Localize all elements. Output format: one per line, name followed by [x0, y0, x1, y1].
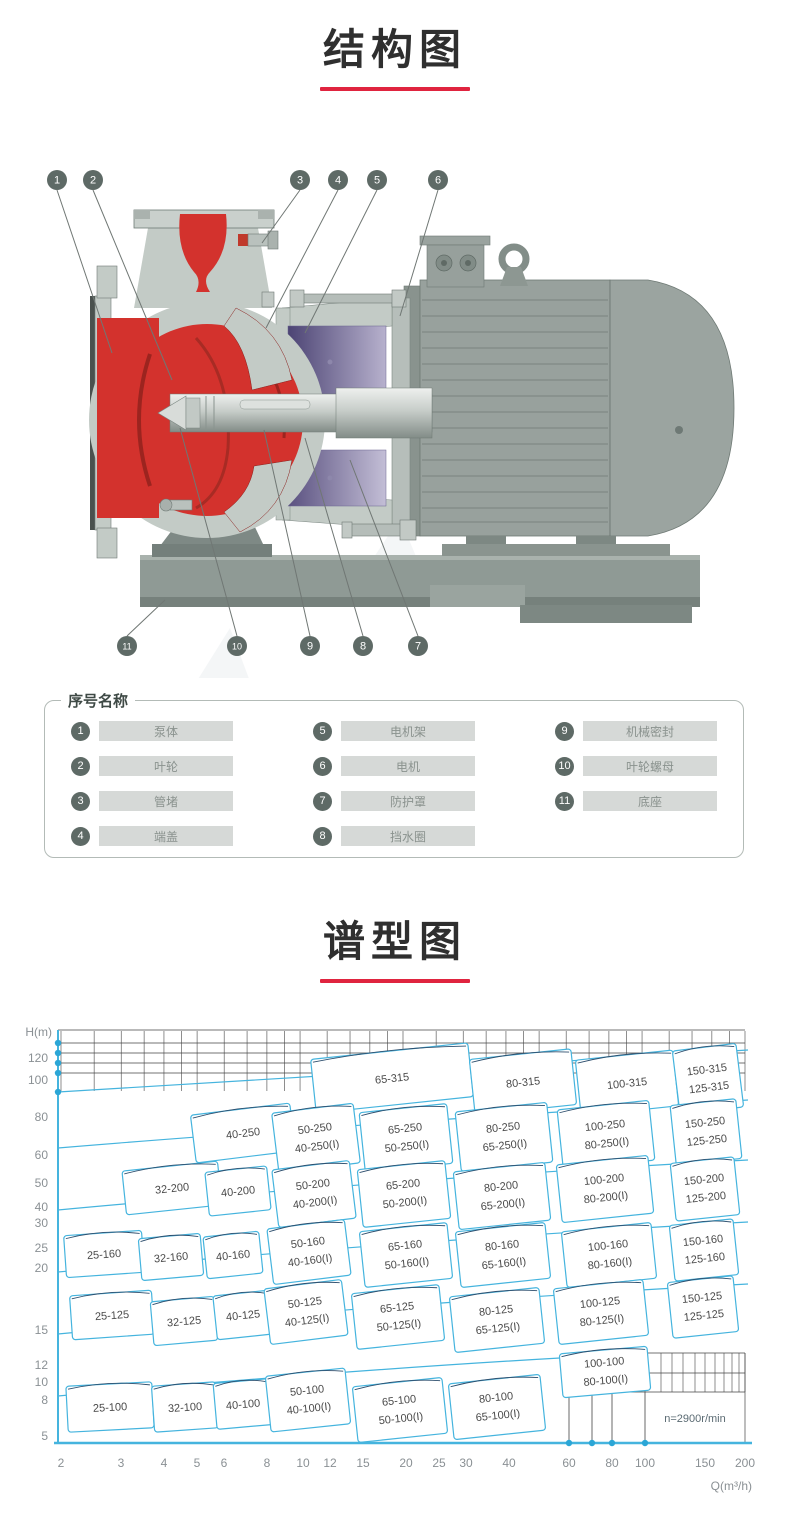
model-region-80-100: 80-10065-100(I) [448, 1374, 545, 1440]
legend-item: 10叶轮螺母 [555, 756, 717, 776]
model-region-40-125: 40-125 [213, 1290, 273, 1340]
legend-item-number: 2 [71, 757, 90, 776]
parts-legend-columns: 1泵体2叶轮3管堵4端盖5电机架6电机7防护罩8挡水圈9机械密封10叶轮螺母11… [45, 701, 743, 861]
x-tick-10: 10 [296, 1456, 310, 1470]
legend-item: 3管堵 [71, 791, 233, 811]
legend-item: 9机械密封 [555, 721, 717, 741]
model-region-25-125: 25-125 [70, 1290, 155, 1340]
parts-legend: 序号名称 1泵体2叶轮3管堵4端盖5电机架6电机7防护罩8挡水圈9机械密封10叶… [44, 700, 744, 858]
svg-text:3: 3 [297, 175, 303, 187]
legend-item-label: 电机架 [341, 721, 475, 741]
drain-plug [160, 499, 192, 511]
callout-9: 9 [300, 636, 320, 656]
y-tick-100: 100 [28, 1073, 48, 1087]
svg-text:10: 10 [232, 642, 242, 652]
y-tick-50: 50 [35, 1176, 49, 1190]
motor-end-screw [675, 426, 683, 434]
legend-item-label: 防护罩 [341, 791, 475, 811]
x-tick-8: 8 [264, 1456, 271, 1470]
model-region-25-160: 25-160 [64, 1230, 145, 1278]
pump-structure-diagram: 1234561110987 [0, 148, 790, 678]
model-region-65-125: 65-12550-125(I) [351, 1284, 444, 1349]
callout-10: 10 [227, 636, 247, 656]
legend-item-label: 泵体 [99, 721, 233, 741]
callout-2: 2 [83, 170, 103, 190]
structure-title-text: 结构图 [0, 16, 790, 77]
model-region-65-200: 65-20050-200(I) [357, 1160, 451, 1227]
x-tick-25: 25 [432, 1456, 446, 1470]
model-region-100-100: 100-10080-100(I) [559, 1346, 651, 1398]
x-tick-6: 6 [221, 1456, 228, 1470]
legend-item: 1泵体 [71, 721, 233, 741]
svg-text:2: 2 [90, 175, 96, 187]
model-region-100-200: 100-20080-200(I) [556, 1155, 654, 1223]
model-region-150-160: 150-160125-160 [669, 1218, 739, 1281]
y-tick-10: 10 [35, 1375, 49, 1389]
callout-1: 1 [47, 170, 67, 190]
legend-item-number: 11 [555, 792, 574, 811]
x-tick-200: 200 [735, 1456, 755, 1470]
pump-shaft [158, 388, 432, 438]
x-tick-15: 15 [356, 1456, 370, 1470]
y-tick-60: 60 [35, 1148, 49, 1162]
legend-item: 2叶轮 [71, 756, 233, 776]
model-region-65-160: 65-16050-160(I) [359, 1222, 452, 1287]
svg-text:9: 9 [307, 641, 313, 653]
model-region-100-125: 100-12580-125(I) [553, 1279, 648, 1345]
callout-7: 7 [408, 636, 428, 656]
model-region-80-160: 80-16065-160(I) [455, 1222, 550, 1288]
model-region-32-100: 32-100 [151, 1381, 218, 1432]
model-region-50-200: 50-20040-200(I) [272, 1160, 357, 1228]
parts-legend-title: 序号名称 [61, 690, 135, 711]
motor-lifting-eye [500, 247, 528, 286]
legend-item-label: 管堵 [99, 791, 233, 811]
legend-item-number: 1 [71, 722, 90, 741]
callout-5: 5 [367, 170, 387, 190]
motor [404, 236, 734, 556]
legend-item-label: 端盖 [99, 826, 233, 846]
callout-3: 3 [290, 170, 310, 190]
y-tick-30: 30 [35, 1216, 49, 1230]
model-region-80-125: 80-12565-125(I) [449, 1287, 544, 1353]
y-tick-40: 40 [35, 1200, 49, 1214]
x-axis-label: Q(m³/h) [711, 1479, 752, 1493]
title-underline [320, 87, 470, 91]
x-tick-30: 30 [459, 1456, 473, 1470]
pump-selection-chart: 65-31580-315100-315150-315125-31540-2505… [0, 1020, 790, 1520]
y-tick-12: 12 [35, 1358, 49, 1372]
callout-8: 8 [353, 636, 373, 656]
model-region-150-250: 150-250125-250 [670, 1098, 742, 1165]
svg-text:25-100: 25-100 [93, 1401, 128, 1415]
y-tick-120: 120 [28, 1051, 48, 1065]
svg-text:1: 1 [54, 175, 60, 187]
model-region-50-100: 50-10040-100(I) [265, 1367, 350, 1432]
legend-column: 9机械密封10叶轮螺母11底座 [555, 721, 717, 861]
speed-annotation: n=2900r/min [664, 1413, 725, 1425]
legend-item: 7防护罩 [313, 791, 475, 811]
legend-column: 1泵体2叶轮3管堵4端盖 [71, 721, 233, 861]
svg-text:25-125: 25-125 [95, 1309, 130, 1323]
model-region-150-200: 150-200125-200 [670, 1156, 740, 1221]
svg-text:4: 4 [335, 175, 341, 187]
shaft-keyway [240, 400, 310, 409]
spectrum-title-text: 谱型图 [0, 908, 790, 969]
legend-item-number: 3 [71, 792, 90, 811]
y-tick-8: 8 [41, 1393, 48, 1407]
model-region-50-160: 50-16040-160(I) [267, 1219, 351, 1285]
x-tick-5: 5 [194, 1456, 201, 1470]
svg-text:7: 7 [415, 641, 421, 653]
model-region-40-200: 40-200 [205, 1165, 271, 1216]
legend-item: 6电机 [313, 756, 475, 776]
legend-item-label: 挡水圈 [341, 826, 475, 846]
legend-item-number: 5 [313, 722, 332, 741]
model-region-80-200: 80-20065-200(I) [453, 1162, 551, 1230]
legend-item-number: 4 [71, 827, 90, 846]
y-tick-15: 15 [35, 1323, 49, 1337]
callout-4: 4 [328, 170, 348, 190]
model-region-80-250: 80-25065-250(I) [455, 1102, 553, 1172]
callout-6: 6 [428, 170, 448, 190]
model-region-32-125: 32-125 [150, 1296, 218, 1346]
x-tick-4: 4 [161, 1456, 168, 1470]
y-tick-80: 80 [35, 1110, 49, 1124]
legend-item-number: 8 [313, 827, 332, 846]
x-tick-60: 60 [562, 1456, 576, 1470]
x-tick-150: 150 [695, 1456, 715, 1470]
legend-item-label: 机械密封 [583, 721, 717, 741]
x-tick-2: 2 [58, 1456, 65, 1470]
model-region-150-125: 150-125125-125 [667, 1275, 739, 1338]
svg-text:11: 11 [122, 642, 131, 652]
chart-model-regions: 65-31580-315100-315150-315125-31540-2505… [64, 1042, 744, 1442]
motor-junction-box [420, 236, 490, 287]
legend-item-number: 9 [555, 722, 574, 741]
motor-seat [442, 544, 670, 556]
x-tick-20: 20 [399, 1456, 413, 1470]
legend-item-label: 叶轮螺母 [583, 756, 717, 776]
legend-item-label: 电机 [341, 756, 475, 776]
svg-text:5: 5 [374, 175, 380, 187]
model-region-40-100: 40-100 [213, 1378, 273, 1429]
legend-column: 5电机架6电机7防护罩8挡水圈 [313, 721, 475, 861]
x-tick-80: 80 [605, 1456, 619, 1470]
y-axis-label: H(m) [25, 1025, 52, 1039]
legend-item-label: 底座 [583, 791, 717, 811]
model-region-32-160: 32-160 [138, 1233, 203, 1281]
x-tick-12: 12 [323, 1456, 337, 1470]
y-tick-25: 25 [35, 1241, 49, 1255]
legend-item: 4端盖 [71, 826, 233, 846]
model-region-65-100: 65-10050-100(I) [352, 1377, 447, 1443]
svg-text:25-160: 25-160 [87, 1248, 122, 1262]
x-tick-100: 100 [635, 1456, 655, 1470]
structure-section-title: 结构图 [0, 16, 790, 91]
legend-item: 11底座 [555, 791, 717, 811]
spectrum-section-title: 谱型图 [0, 908, 790, 983]
y-tick-20: 20 [35, 1261, 49, 1275]
x-tick-3: 3 [118, 1456, 125, 1470]
legend-item: 8挡水圈 [313, 826, 475, 846]
model-region-100-160: 100-16080-160(I) [561, 1222, 656, 1288]
legend-item: 5电机架 [313, 721, 475, 741]
model-region-50-125: 50-12540-125(I) [264, 1279, 348, 1345]
legend-item-label: 叶轮 [99, 756, 233, 776]
page: 结构图 [0, 0, 790, 1520]
y-tick-5: 5 [41, 1429, 48, 1443]
x-tick-40: 40 [502, 1456, 516, 1470]
legend-item-number: 10 [555, 757, 574, 776]
title-underline [320, 979, 470, 983]
legend-item-number: 6 [313, 757, 332, 776]
model-region-25-100: 25-100 [66, 1381, 154, 1432]
svg-text:32-100: 32-100 [168, 1401, 203, 1415]
model-region-40-160: 40-160 [203, 1231, 263, 1279]
callout-11: 11 [117, 636, 137, 656]
svg-text:6: 6 [435, 175, 441, 187]
legend-item-number: 7 [313, 792, 332, 811]
svg-text:8: 8 [360, 641, 366, 653]
suction-chamber-red [97, 318, 159, 518]
